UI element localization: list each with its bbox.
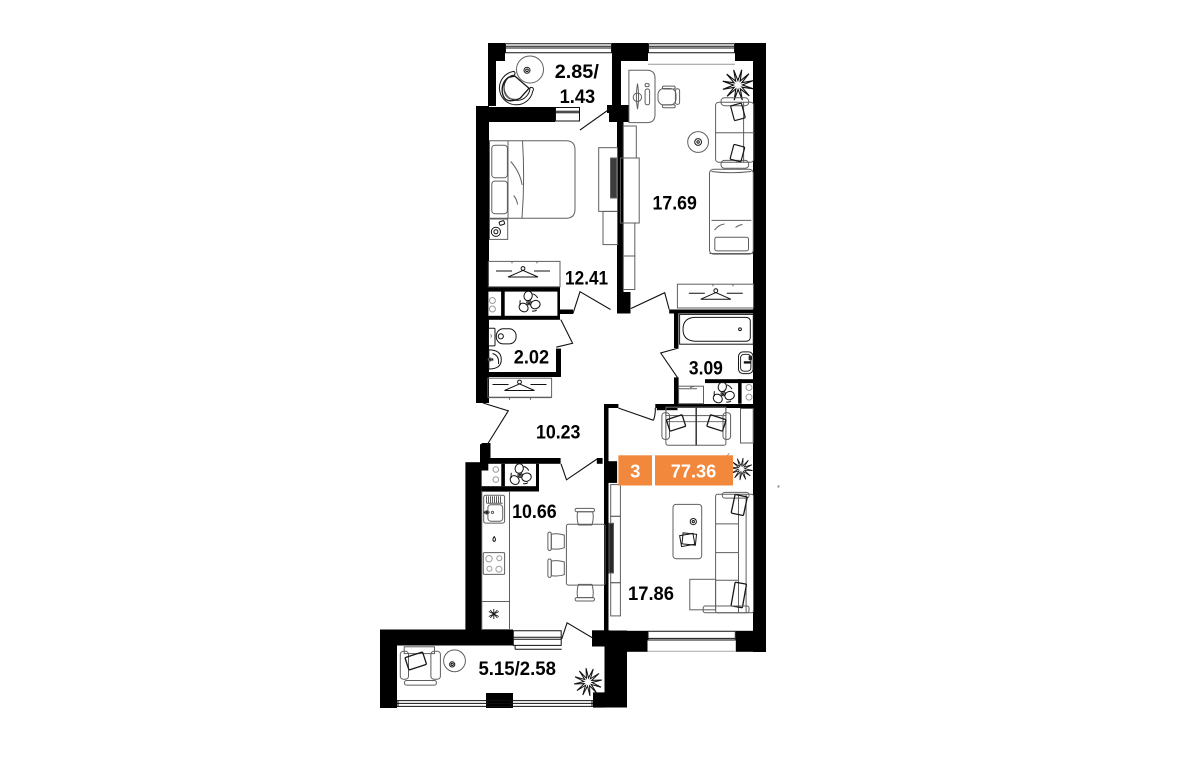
svg-text:3.09: 3.09: [689, 358, 723, 380]
svg-text:3: 3: [630, 461, 640, 482]
svg-text:77.36: 77.36: [671, 460, 717, 481]
svg-text:12.41: 12.41: [565, 267, 608, 289]
svg-text:17.69: 17.69: [653, 193, 697, 215]
svg-text:2.85/: 2.85/: [555, 61, 600, 83]
svg-text:10.66: 10.66: [512, 501, 557, 523]
svg-text:2.02: 2.02: [514, 346, 549, 368]
svg-text:10.23: 10.23: [536, 422, 581, 444]
svg-text:5.15/2.58: 5.15/2.58: [478, 658, 556, 680]
svg-text:1.43: 1.43: [560, 86, 596, 108]
svg-text:17.86: 17.86: [628, 583, 674, 605]
